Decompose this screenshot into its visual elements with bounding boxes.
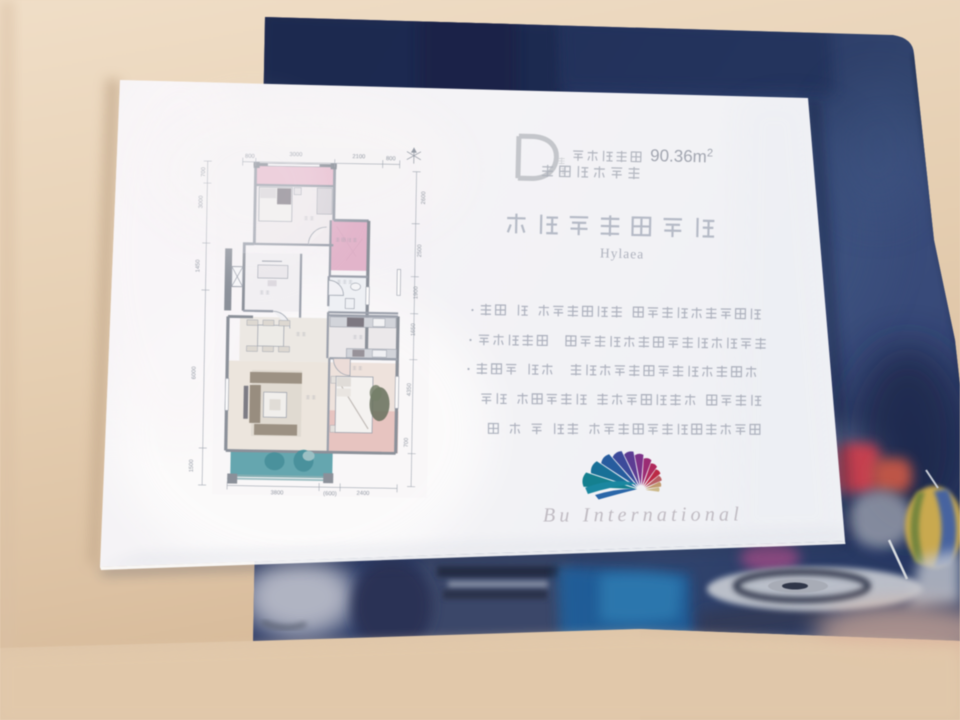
svg-text:90.36m2: 90.36m2 [650, 146, 713, 167]
svg-text:3800: 3800 [270, 490, 283, 496]
svg-text:1900: 1900 [413, 286, 419, 299]
svg-text:2100: 2100 [352, 154, 365, 160]
svg-text:4350: 4350 [407, 383, 413, 396]
svg-text:1450: 1450 [195, 259, 201, 272]
svg-text:2600: 2600 [421, 191, 427, 204]
svg-text:Hylaea: Hylaea [600, 245, 645, 261]
svg-text:800: 800 [386, 156, 396, 162]
svg-text:6000: 6000 [191, 366, 197, 379]
svg-text:1650: 1650 [411, 323, 417, 336]
svg-text:1500: 1500 [189, 459, 195, 472]
svg-text:Bu International: Bu International [543, 503, 743, 526]
svg-text:700: 700 [404, 438, 410, 448]
svg-text:2500: 2500 [417, 244, 423, 257]
svg-text:(600): (600) [323, 491, 337, 497]
svg-text:2400: 2400 [356, 491, 369, 497]
